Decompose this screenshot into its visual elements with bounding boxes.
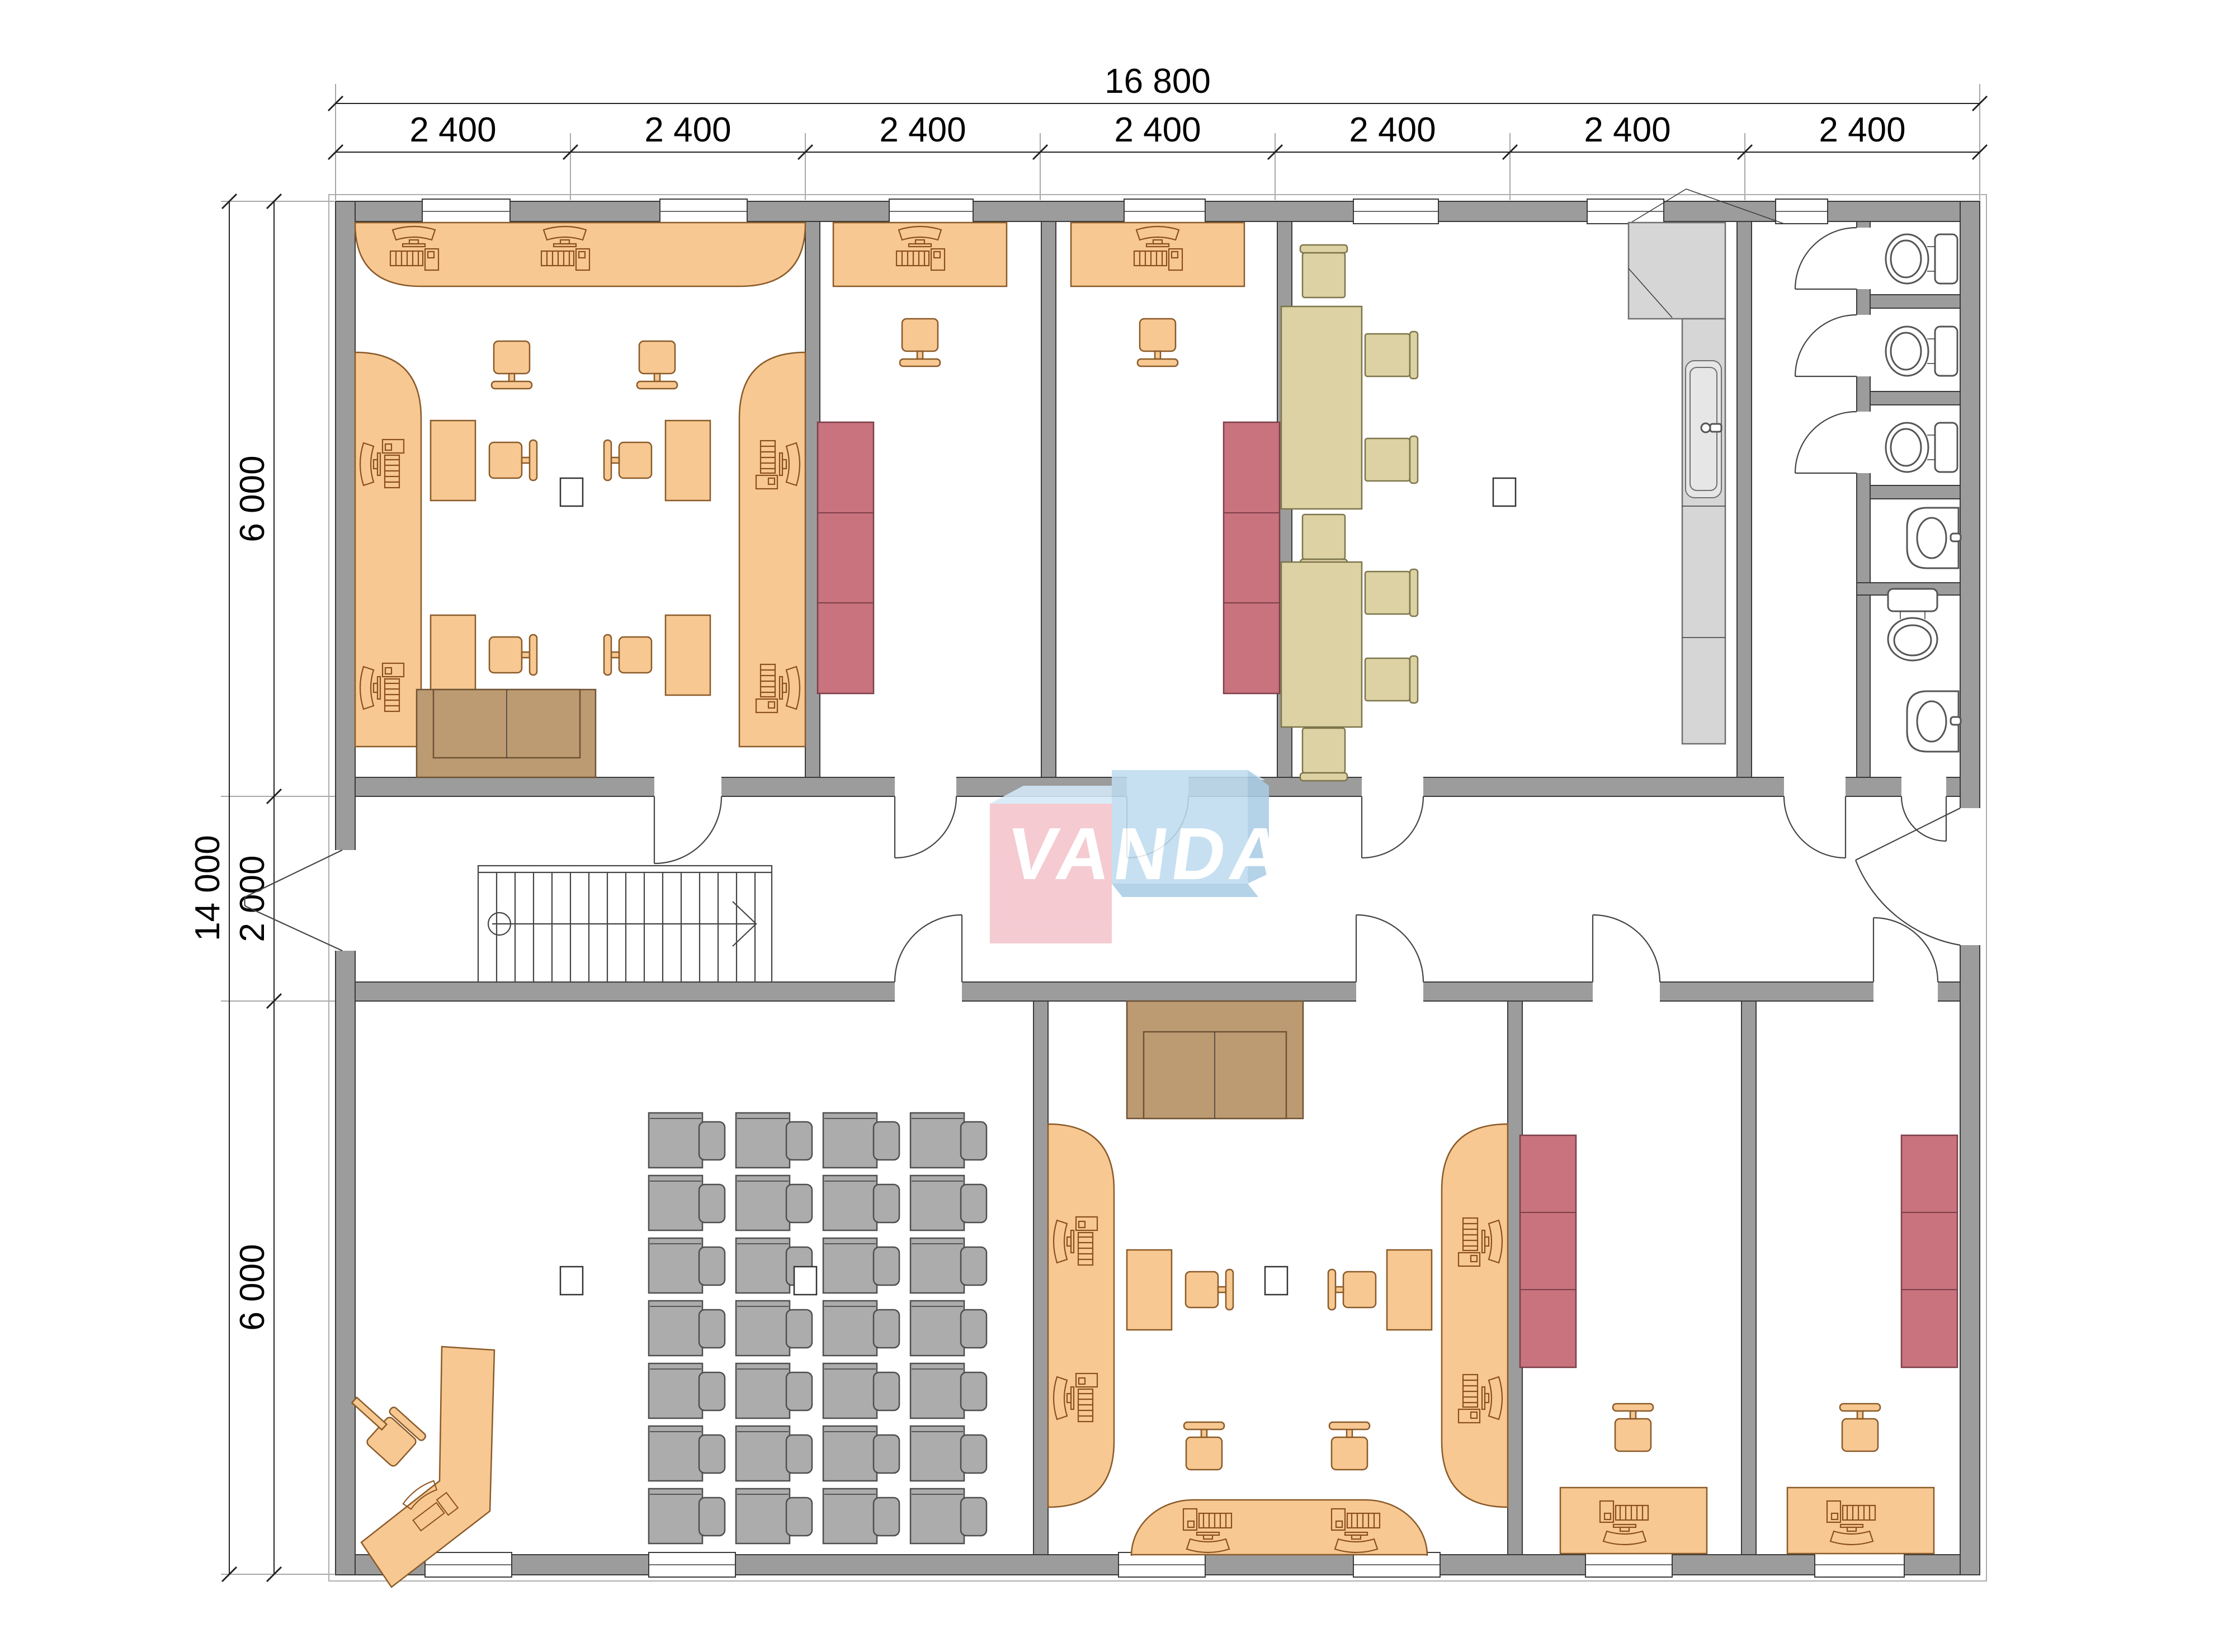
window [1353, 199, 1438, 224]
dimension-total-height: 14 000 [188, 835, 227, 941]
student-desk [910, 1301, 987, 1356]
office-chair [1329, 1422, 1370, 1470]
student-desk [823, 1363, 899, 1418]
dimension-bay: 2 400 [1584, 111, 1670, 149]
sofa [417, 690, 596, 777]
dimension-total-width: 16 800 [1105, 62, 1211, 101]
office-chair [489, 635, 537, 675]
window [1353, 1552, 1440, 1577]
student-desk [649, 1301, 725, 1356]
window [889, 199, 973, 224]
door [1784, 796, 1846, 858]
stall-door [1795, 412, 1857, 473]
room-break [1281, 189, 1784, 781]
student-desk [649, 1238, 725, 1293]
office-chair [604, 635, 652, 675]
toilet [1886, 423, 1957, 472]
dimension-bay: 2 400 [879, 111, 966, 149]
student-desk [910, 1238, 987, 1293]
student-desk [736, 1363, 812, 1418]
sink [1907, 508, 1961, 568]
window [1815, 1552, 1904, 1577]
office-chair [1613, 1404, 1653, 1451]
desk [1387, 1250, 1432, 1330]
window [1118, 1552, 1205, 1577]
chair [1300, 728, 1347, 781]
door [1356, 915, 1423, 982]
office-chair [1184, 1422, 1224, 1470]
chair [1365, 436, 1418, 483]
student-desk [823, 1489, 899, 1544]
desk [1127, 1250, 1172, 1330]
desk-counter [1442, 1124, 1508, 1507]
desk-counter [739, 352, 805, 747]
stall-door [1795, 315, 1857, 376]
desk-counter [355, 352, 421, 747]
toilet [1886, 327, 1957, 376]
chair [1300, 245, 1347, 298]
red-cabinet [818, 422, 874, 693]
dimension-bay: 2 400 [1349, 111, 1436, 149]
dimension-bay: 2 400 [409, 111, 496, 149]
room-office-1-top [818, 223, 1007, 693]
meeting-table [1281, 562, 1362, 727]
column [560, 1267, 583, 1295]
logo: VANDA [990, 770, 1294, 943]
student-desk [736, 1176, 812, 1230]
toilet [1886, 234, 1957, 284]
student-desk [649, 1113, 725, 1168]
desk [666, 615, 710, 695]
student-desk [823, 1238, 899, 1293]
room-classroom [352, 1113, 987, 1587]
column [794, 1267, 817, 1295]
desk [1071, 223, 1244, 286]
floor-plan: 16 800 2 400 2 400 2 400 2 400 2 400 2 4… [0, 0, 2237, 1652]
desk [666, 421, 710, 501]
student-desk [910, 1426, 987, 1481]
student-desk [736, 1489, 812, 1544]
chair [1365, 656, 1418, 703]
window [1585, 1552, 1672, 1577]
logo-text: VANDA [1003, 813, 1294, 895]
student-desk [649, 1489, 725, 1544]
dimension-bay: 2 400 [1819, 111, 1905, 149]
student-desk [910, 1489, 987, 1544]
room-small-office-2 [1787, 1135, 1957, 1554]
stairs [478, 866, 772, 982]
room-open-office-top [355, 223, 805, 777]
student-desk [910, 1363, 987, 1418]
door [654, 796, 721, 863]
office-chair [604, 440, 652, 480]
room-open-office-bottom [1048, 1001, 1508, 1556]
desk [431, 615, 475, 695]
chair [1365, 569, 1418, 616]
window [649, 1552, 735, 1577]
column [1493, 478, 1516, 506]
desk-counter [1131, 1500, 1427, 1556]
sofa [1127, 1001, 1303, 1118]
stall-door [1795, 228, 1857, 289]
door [1593, 915, 1660, 982]
office-chair [637, 341, 677, 389]
desk-counter [1048, 1124, 1114, 1507]
corridor [478, 866, 772, 982]
window [1587, 199, 1664, 224]
red-cabinet [1520, 1135, 1576, 1367]
kitchen-counter [1629, 189, 1784, 744]
office-chair [492, 341, 532, 389]
window [422, 199, 510, 224]
student-desk [823, 1426, 899, 1481]
kitchen-sink [1686, 361, 1721, 498]
dimension-band: 2 000 [233, 855, 272, 942]
office-chair [1186, 1269, 1233, 1310]
dimension-bay: 2 400 [644, 111, 731, 149]
room-small-office-1 [1520, 1135, 1707, 1554]
red-cabinet [1901, 1135, 1957, 1367]
desk [833, 223, 1007, 286]
reception-desk [352, 1347, 494, 1587]
meeting-table [1281, 306, 1362, 509]
red-cabinet [1224, 422, 1280, 693]
student-desk [649, 1176, 725, 1230]
dimension-bay: 2 400 [1114, 111, 1201, 149]
dimension-band: 6 000 [233, 1244, 272, 1330]
office-chair [489, 440, 537, 480]
student-desk [823, 1113, 899, 1168]
desk [431, 421, 475, 501]
student-desk [736, 1301, 812, 1356]
office-chair [1328, 1269, 1376, 1310]
window [660, 199, 747, 224]
window [1124, 199, 1205, 224]
dimension-left: 14 000 6 000 2 000 6 000 [188, 194, 336, 1582]
door [895, 796, 956, 858]
column [560, 478, 583, 506]
door [895, 915, 962, 982]
student-desk [649, 1363, 725, 1418]
exit-door [1856, 808, 1960, 945]
student-desk [910, 1113, 987, 1168]
student-desk [823, 1176, 899, 1230]
student-desk [910, 1176, 987, 1230]
door [1362, 796, 1423, 858]
door [1873, 918, 1938, 982]
sink [1907, 691, 1961, 752]
chair [1365, 332, 1418, 379]
column [1265, 1267, 1287, 1295]
chair [1300, 515, 1347, 567]
window [425, 1552, 512, 1577]
office-chair [1138, 319, 1178, 366]
dimension-top: 16 800 2 400 2 400 2 400 2 400 2 400 2 4… [328, 62, 1987, 200]
office-chair [900, 319, 940, 366]
student-desk [649, 1426, 725, 1481]
window [1776, 199, 1828, 224]
student-desk [736, 1426, 812, 1481]
student-desk [736, 1113, 812, 1168]
toilet [1888, 589, 1937, 660]
room-office-2-top [1071, 223, 1280, 693]
student-desk [823, 1301, 899, 1356]
office-chair [1840, 1404, 1880, 1451]
dimension-band: 6 000 [233, 455, 272, 542]
